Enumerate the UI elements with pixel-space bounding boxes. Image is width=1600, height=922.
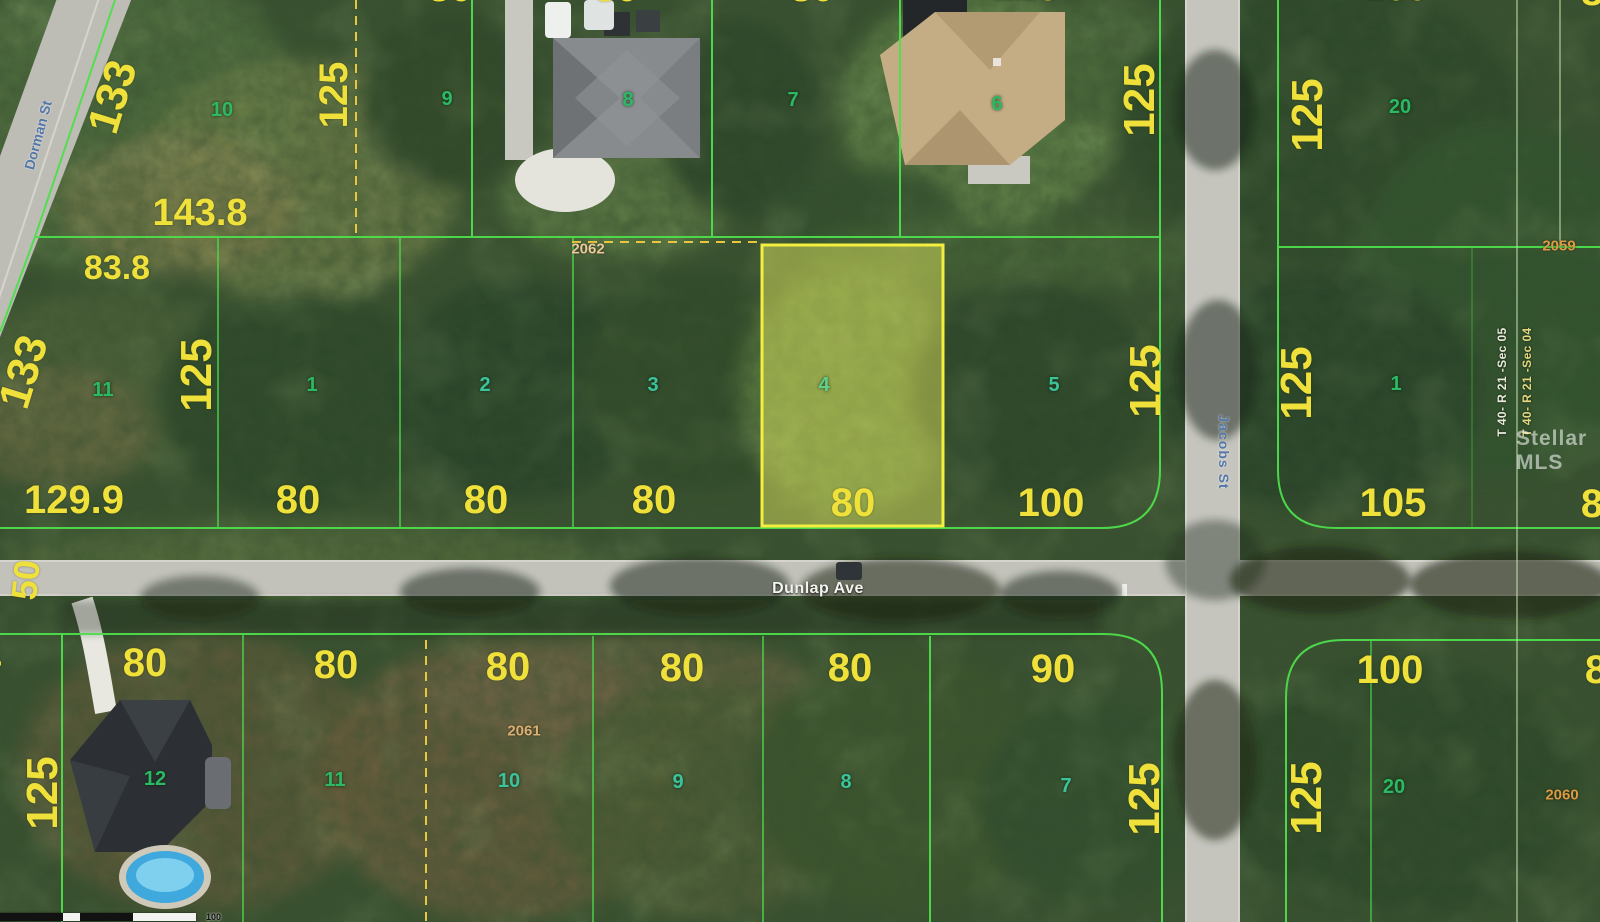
dimension-label: 80 — [660, 648, 705, 688]
scale-bar-segment — [80, 913, 133, 921]
dimension-label: 80 — [486, 647, 531, 687]
scale-bar — [0, 913, 196, 921]
lot-number: 3 — [647, 375, 658, 395]
lot-number: 1 — [306, 375, 317, 395]
lot-number: 11 — [324, 770, 345, 790]
dimension-label-partial: 80 — [790, 0, 835, 8]
dimension-label: 125 — [1275, 346, 1319, 419]
lot-number: 8 — [622, 90, 633, 110]
lot-number: 20 — [1383, 777, 1405, 797]
dimension-label: 80 — [276, 480, 321, 520]
dimension-label: 125 — [1123, 762, 1167, 835]
watermark-stellar-mls: Stellar MLS — [1516, 427, 1600, 475]
lot-number: 10 — [498, 771, 520, 791]
dimension-label: 80 — [464, 480, 509, 520]
lot-number: 11 — [92, 380, 113, 400]
dashed-boundary-lines — [356, 0, 758, 922]
lot-number: 7 — [1060, 776, 1071, 796]
lot-number: 20 — [1389, 97, 1411, 117]
dimension-label: 80 — [831, 483, 876, 523]
scale-bar-label: 100 — [206, 912, 221, 922]
parcel-boundaries — [0, 0, 1600, 922]
dimension-label: 125 — [175, 338, 219, 411]
dimension-label: 80 — [828, 648, 873, 688]
dimension-label-partial: 8 — [1581, 484, 1600, 524]
dimension-label: 80 — [314, 645, 359, 685]
dimension-label-partial: 125 — [993, 0, 1060, 7]
lot-number: 7 — [787, 90, 798, 110]
lot-number: 1 — [1390, 374, 1401, 394]
dimension-label: 100 — [1357, 650, 1424, 690]
lot-number: 2 — [479, 375, 490, 395]
lot-number: 6 — [991, 94, 1002, 114]
lot-number-highlighted: 4 — [818, 375, 829, 395]
section-label-sec05: T 40- R 21 -Sec 05 — [1496, 327, 1508, 436]
dimension-label: 83.8 — [84, 251, 150, 285]
dimension-label-partial: 80 — [594, 0, 639, 8]
dimension-label: 143.8 — [152, 194, 247, 232]
dimension-label: 129.9 — [24, 480, 124, 520]
parcel-id-label: 2059 — [1542, 239, 1575, 254]
street-label-dunlap-ave: Dunlap Ave — [772, 581, 864, 597]
parcel-id-label: 2062 — [571, 242, 604, 257]
street-label-jacobs-st: Jacobs St — [1217, 414, 1231, 489]
dimension-label-partial: 4 — [0, 638, 1, 678]
lot-number: 12 — [144, 769, 166, 789]
lot-number: 10 — [211, 100, 233, 120]
dimension-label: 125 — [314, 62, 354, 129]
parcel-id-label: 2061 — [507, 724, 540, 739]
dimension-label: 90 — [1031, 649, 1076, 689]
dimension-label-partial: 100 — [1364, 0, 1427, 7]
dimension-label: 80 — [632, 480, 677, 520]
dimension-label-partial: 80 — [428, 0, 473, 8]
lot-number: 8 — [840, 772, 851, 792]
dimension-label-partial: 8 — [1581, 0, 1600, 12]
lot-number: 9 — [672, 772, 683, 792]
dimension-label: 125 — [1124, 344, 1168, 417]
dimension-label: 125 — [1285, 761, 1329, 834]
dimension-label: 105 — [1360, 483, 1427, 523]
aerial-parcel-map: Dorman St Dunlap Ave Jacobs St 133 125 1… — [0, 0, 1600, 922]
lot-number: 5 — [1048, 375, 1059, 395]
dimension-label: 100 — [1018, 483, 1085, 523]
parcel-id-label: 2060 — [1545, 788, 1578, 803]
dimension-label: 50 — [6, 558, 46, 602]
dimension-label-partial: 8 — [1585, 650, 1600, 690]
dimension-label: 125 — [1118, 63, 1162, 136]
dimension-label: 125 — [1286, 78, 1330, 151]
scale-bar-segment — [0, 913, 63, 921]
dimension-label: 125 — [21, 756, 65, 829]
dimension-label: 80 — [123, 643, 168, 683]
lot-number: 9 — [441, 89, 452, 109]
section-label-sec04: T 40- R 21 -Sec 04 — [1521, 327, 1533, 436]
